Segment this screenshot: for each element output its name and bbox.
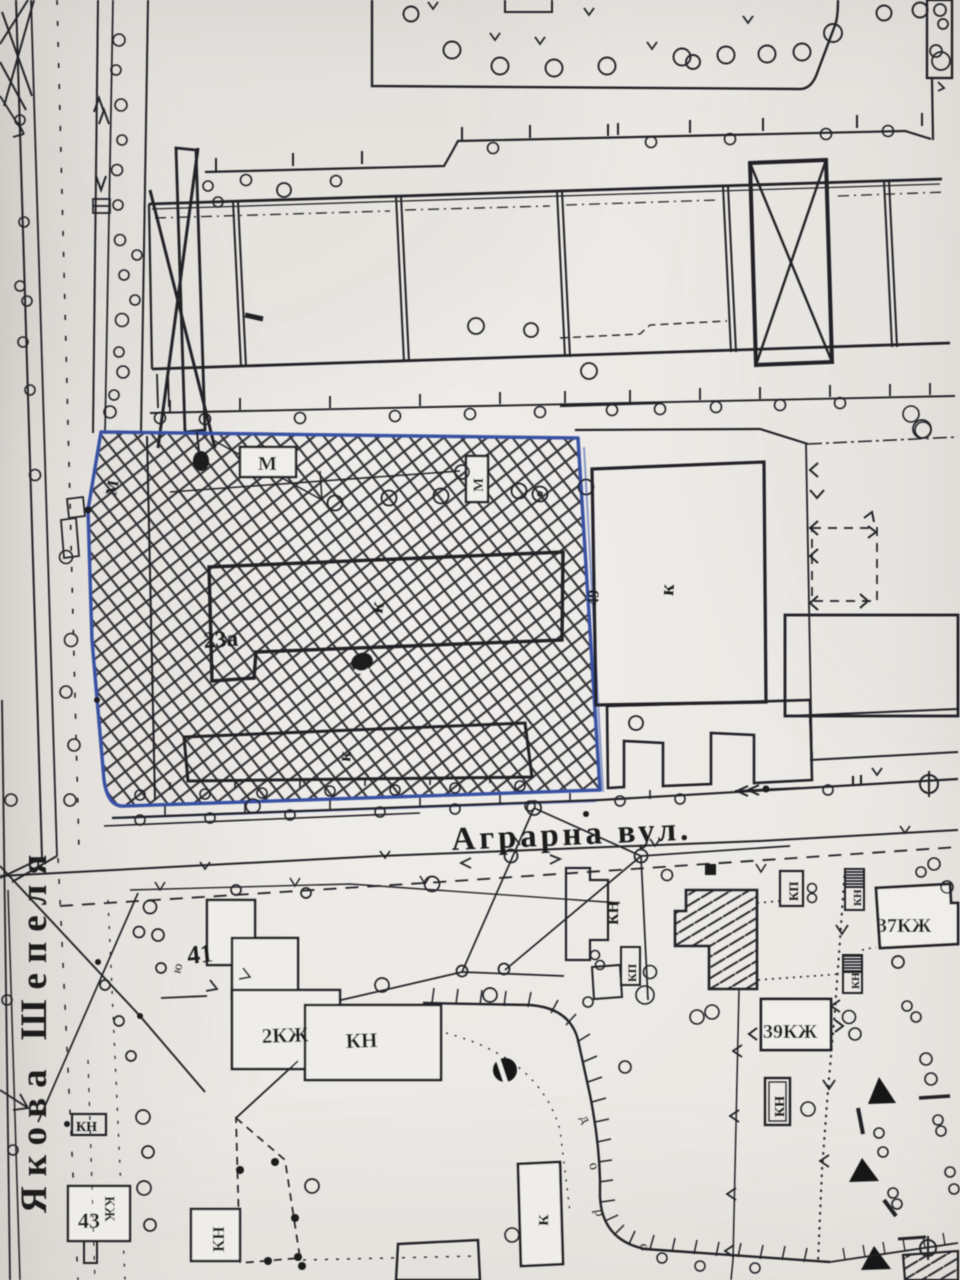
- svg-text:КН: КН: [605, 900, 622, 925]
- svg-text:КЖ: КЖ: [101, 1196, 117, 1222]
- svg-text:КН: КН: [850, 972, 862, 989]
- svg-text:КН: КН: [209, 1226, 228, 1252]
- svg-text:КП: КП: [786, 881, 801, 901]
- svg-text:КН: КН: [76, 1120, 97, 1135]
- svg-text:КН: КН: [852, 889, 864, 906]
- svg-text:Якова Шепеля: Якова Шепеля: [14, 845, 55, 1213]
- svg-text:М: М: [258, 453, 277, 475]
- svg-text:2КЖ: 2КЖ: [261, 1022, 309, 1048]
- svg-text:к: к: [531, 1213, 553, 1226]
- svg-text:41: 41: [186, 938, 215, 970]
- svg-text:23а: 23а: [203, 626, 240, 653]
- svg-text:37КЖ: 37КЖ: [877, 915, 932, 937]
- svg-text:М: М: [103, 479, 122, 497]
- svg-text:43: 43: [78, 1208, 100, 1233]
- svg-text:КН: КН: [773, 1096, 788, 1117]
- svg-text:39КЖ: 39КЖ: [763, 1021, 818, 1043]
- svg-text:о: о: [636, 1243, 651, 1251]
- svg-text:КН: КН: [345, 1028, 377, 1053]
- svg-text:М: М: [471, 478, 487, 492]
- svg-text:КП: КП: [625, 963, 639, 982]
